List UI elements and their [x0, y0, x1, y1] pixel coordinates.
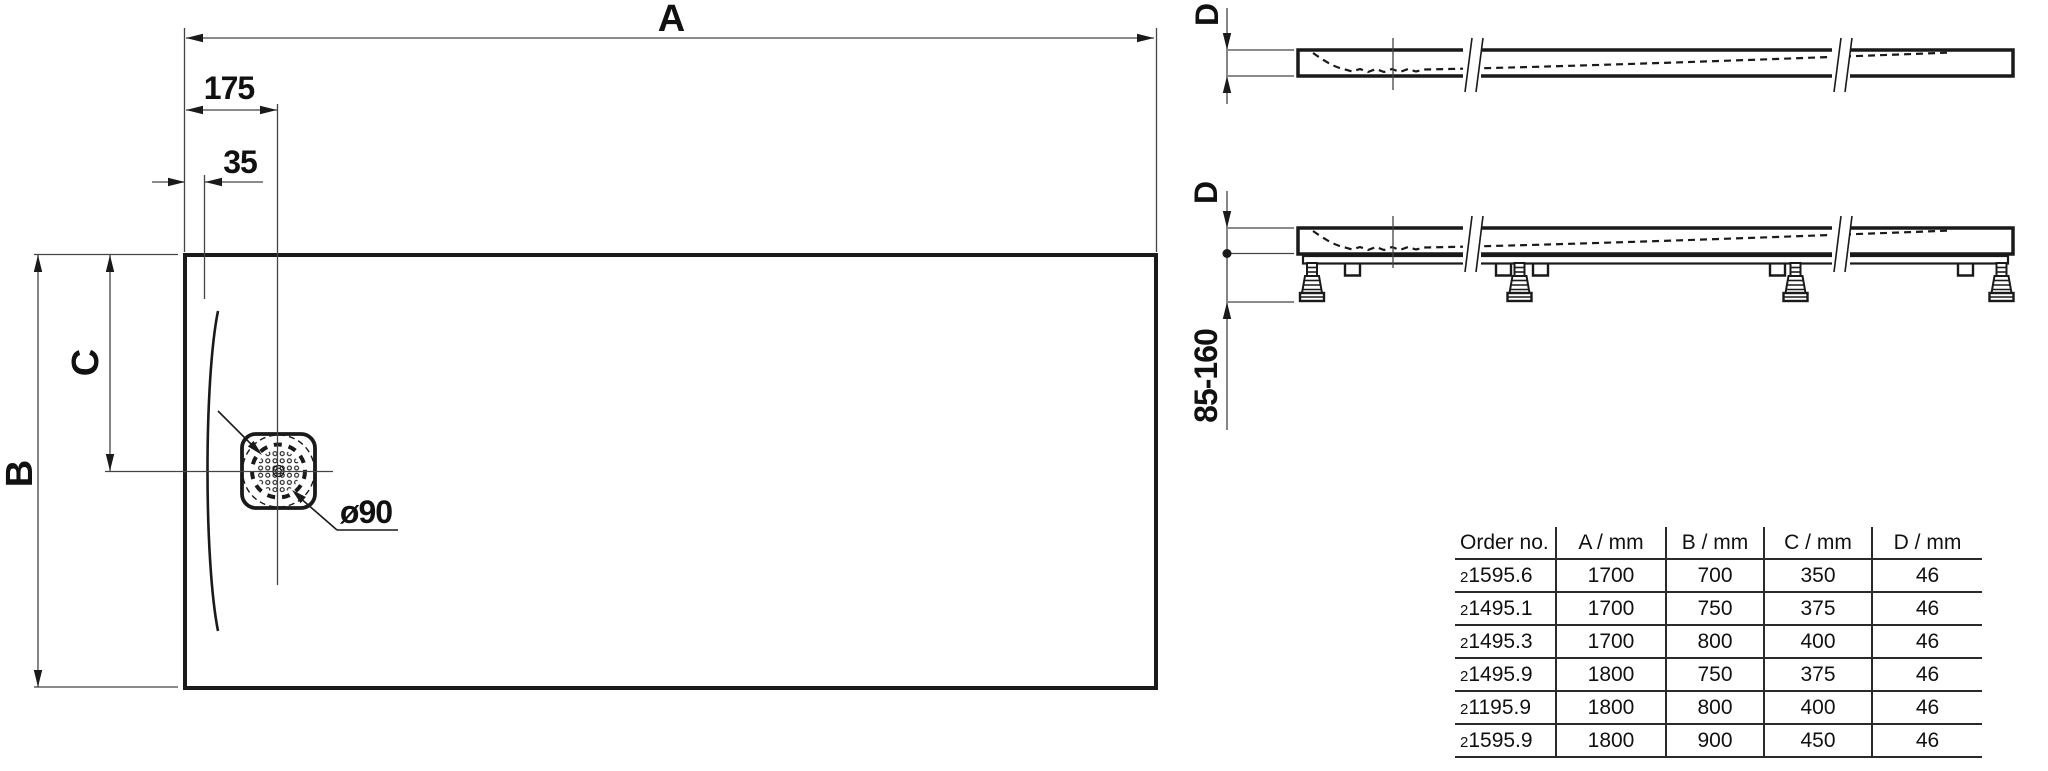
dim-label-d-top: D: [1191, 4, 1223, 26]
order-number: 1595.9: [1468, 729, 1532, 752]
c-cell: 375: [1764, 658, 1872, 691]
b-cell: 900: [1666, 724, 1764, 757]
side-view-with-feet: [1223, 191, 2014, 430]
dimension-d-and-feet-height: [1223, 191, 1295, 430]
d-cell: 46: [1872, 559, 1982, 592]
order-no-cell: 21495.3: [1455, 625, 1556, 658]
dim-label-feet-height: 85-160: [1190, 329, 1222, 423]
order-number: 1495.1: [1468, 597, 1532, 620]
col-header-a: A / mm: [1556, 527, 1666, 559]
table-row: 21595.9 1800 900 450 46: [1455, 724, 1982, 757]
side-view-section: [1223, 8, 2013, 104]
d-cell: 46: [1872, 658, 1982, 691]
frame-hook: [1533, 264, 1548, 276]
dimension-dot-terminator: [1223, 249, 1232, 258]
dim-label-35: 35: [223, 146, 257, 178]
a-cell: 1800: [1556, 724, 1666, 757]
frame-hook: [1770, 264, 1785, 276]
order-no-cell: 21595.6: [1455, 559, 1556, 592]
table-row: 21595.6 1700 700 350 46: [1455, 559, 1982, 592]
col-header-b: B / mm: [1666, 527, 1764, 559]
dimension-table: Order no. A / mm B / mm C / mm D / mm 21…: [1455, 527, 1982, 758]
table-row: 21495.1 1700 750 375 46: [1455, 592, 1982, 625]
adjustable-foot: [1990, 263, 2014, 301]
table-row: 21495.3 1700 800 400 46: [1455, 625, 1982, 658]
c-cell: 350: [1764, 559, 1872, 592]
adjustable-foot: [1784, 263, 1808, 301]
shower-tray-technical-drawing: A 175 35 B C ø90 D D 85-160 Order no. A …: [0, 0, 2048, 771]
d-cell: 46: [1872, 625, 1982, 658]
a-cell: 1700: [1556, 559, 1666, 592]
dim-label-d-front: D: [1190, 182, 1222, 204]
order-number: 1495.3: [1468, 630, 1532, 653]
a-cell: 1800: [1556, 658, 1666, 691]
c-cell: 400: [1764, 691, 1872, 724]
order-number: 1195.9: [1468, 696, 1531, 719]
frame-hook: [1496, 264, 1511, 276]
a-cell: 1800: [1556, 691, 1666, 724]
col-header-order-no: Order no.: [1455, 527, 1556, 559]
dimension-b: [34, 255, 178, 688]
dimension-c: [106, 255, 114, 471]
order-number: 1495.9: [1468, 663, 1532, 686]
col-header-d: D / mm: [1872, 527, 1982, 559]
b-cell: 800: [1666, 691, 1764, 724]
dim-label-b: B: [1, 461, 39, 487]
frame-hook: [1958, 264, 1973, 276]
table-row: 21195.9 1800 800 400 46: [1455, 691, 1982, 724]
a-cell: 1700: [1556, 592, 1666, 625]
b-cell: 750: [1666, 658, 1764, 691]
dimension-d-top: [1223, 8, 1294, 104]
b-cell: 800: [1666, 625, 1764, 658]
d-cell: 46: [1872, 592, 1982, 625]
adjustable-foot: [1300, 263, 1324, 301]
order-no-cell: 21595.9: [1455, 724, 1556, 757]
dimension-a: [185, 28, 1157, 252]
c-cell: 400: [1764, 625, 1872, 658]
c-cell: 450: [1764, 724, 1872, 757]
plan-view: [34, 28, 1157, 688]
a-cell: 1700: [1556, 625, 1666, 658]
order-no-cell: 21195.9: [1455, 691, 1556, 724]
support-frame: [1303, 256, 2008, 264]
d-cell: 46: [1872, 724, 1982, 757]
dim-label-drain-diameter: ø90: [340, 496, 392, 528]
b-cell: 700: [1666, 559, 1764, 592]
dim-label-c: C: [67, 350, 105, 376]
table-header-row: Order no. A / mm B / mm C / mm D / mm: [1455, 527, 1982, 559]
b-cell: 750: [1666, 592, 1764, 625]
dim-label-175: 175: [204, 72, 254, 104]
c-cell: 375: [1764, 592, 1872, 625]
dimension-175: [186, 106, 277, 114]
dim-label-a: A: [658, 0, 684, 38]
order-no-cell: 21495.1: [1455, 592, 1556, 625]
order-number: 1595.6: [1468, 564, 1532, 587]
order-no-cell: 21495.9: [1455, 658, 1556, 691]
frame-hook: [1345, 264, 1360, 276]
col-header-c: C / mm: [1764, 527, 1872, 559]
table-row: 21495.9 1800 750 375 46: [1455, 658, 1982, 691]
d-cell: 46: [1872, 691, 1982, 724]
